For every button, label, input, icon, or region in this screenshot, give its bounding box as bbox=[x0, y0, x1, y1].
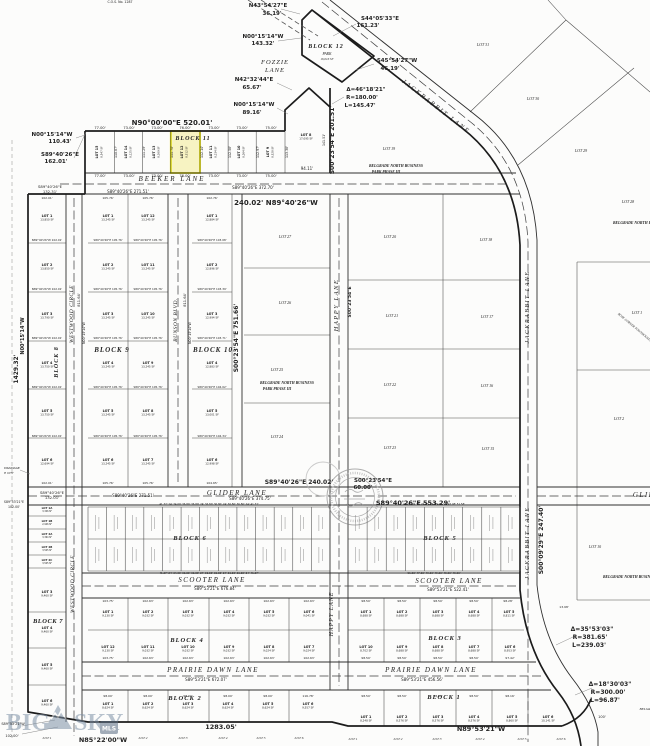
lot-label: LOT 58,860 SF bbox=[506, 715, 518, 723]
map-label: 98.50' bbox=[433, 599, 443, 603]
map-label: 104.65' bbox=[206, 481, 217, 485]
lot-label: LOT 98,688 SF bbox=[396, 645, 408, 653]
map-label: 51.58' 47.08' 49.33' 49.33' 49.33' 49.33… bbox=[408, 571, 461, 575]
map-label: 98.50' bbox=[469, 599, 479, 603]
map-label: 100' bbox=[598, 715, 606, 719]
lot-label: LOT 112,884 SF bbox=[205, 214, 219, 222]
map-label: LOT 25 bbox=[270, 367, 283, 372]
map-label: PARK bbox=[321, 52, 331, 56]
map-label: 143.32' bbox=[252, 41, 275, 47]
map-label: LOT 2 bbox=[138, 736, 148, 740]
map-label: N85°22'00"W bbox=[79, 736, 127, 744]
map-label: S89°40'26"E 104.34' bbox=[197, 434, 226, 438]
map-label: LOT 2 bbox=[613, 416, 624, 421]
lot-label: LOT 713,245 SF bbox=[141, 458, 155, 466]
map-label: N89°40'26"W 102.01' bbox=[32, 336, 63, 340]
map-label: PARK PHASE III bbox=[372, 170, 401, 174]
map-label: 75.00' bbox=[265, 174, 276, 178]
lot-label: LOT 69,557 SF bbox=[302, 702, 314, 710]
map-label: 98.50' bbox=[433, 694, 443, 698]
map-label: S89°53'21"W bbox=[1, 722, 25, 726]
lot-label: LOT 212,896 SF bbox=[205, 263, 219, 271]
lot-label: LOT 15 bbox=[95, 145, 99, 158]
map-label: 102.63' bbox=[263, 656, 274, 660]
lot-label: 8,512 SF bbox=[185, 146, 189, 158]
map-label: 132.31' bbox=[43, 189, 57, 194]
lot-label: LOT 28,624 SF bbox=[142, 702, 154, 710]
map-label: 98.00' bbox=[143, 694, 153, 698]
map-label: LOT 1 bbox=[348, 737, 358, 741]
lot-label: LOT 59,460 SF bbox=[41, 663, 53, 671]
map-label: S89°40'26"E 240.02' bbox=[265, 479, 334, 486]
lot-label: LOT 108,702 SF bbox=[359, 645, 373, 653]
map-label: 77.00' bbox=[94, 126, 105, 130]
map-label: BLOCK 6 bbox=[172, 535, 207, 542]
lot-label: LOT 99,032 SF bbox=[223, 645, 235, 653]
map-label: 102.63' bbox=[142, 599, 153, 603]
map-label: N90°00'00"E 520.01' bbox=[132, 119, 213, 127]
map-label: S00°09'29"E 247.40' bbox=[538, 506, 545, 575]
map-label: 13.98' bbox=[559, 605, 569, 609]
map-label: 102.00' bbox=[8, 505, 20, 509]
map-label: BLOCK 3 bbox=[427, 635, 462, 642]
lot-label: LOT 613,245 SF bbox=[101, 458, 115, 466]
lot-label: 8,169 SF bbox=[157, 146, 161, 158]
map-label: 240.02' N89°40'26"W bbox=[234, 199, 318, 207]
mls-badge-label: MLS bbox=[102, 726, 116, 733]
lot-label: LOT 18,688 SF bbox=[360, 610, 372, 618]
map-label: 102.63' bbox=[142, 656, 153, 660]
lot-label: LOT 213,850 SF bbox=[40, 263, 54, 271]
map-label: 98.50' bbox=[397, 694, 407, 698]
map-label: 98.50' bbox=[361, 656, 371, 660]
map-label: 98.50' bbox=[397, 599, 407, 603]
lot-label: LOT 68,953 SF bbox=[504, 645, 516, 653]
map-label: S89°40'26"E 105.76' bbox=[133, 336, 162, 340]
map-label: 161.23' bbox=[357, 23, 380, 29]
lot-label: LOT 39,460 SF bbox=[41, 590, 53, 598]
map-label: Δ=46°18'21" bbox=[346, 87, 385, 93]
map-label: BELGRADE NORTH BUSINESS bbox=[368, 164, 423, 168]
map-label: R=180.00' bbox=[346, 95, 378, 101]
lot-label: 8,264 SF bbox=[242, 146, 246, 158]
map-label: LOT 22 bbox=[383, 382, 396, 387]
map-label: LOT 26 bbox=[278, 300, 291, 305]
map-background bbox=[0, 0, 650, 746]
map-label: LANE bbox=[264, 67, 285, 74]
lot-label: LOT 1B2,946 SF bbox=[42, 519, 53, 526]
lot-label: LOT 513,245 SF bbox=[101, 409, 115, 417]
map-label: 102.63' bbox=[182, 656, 193, 660]
map-label: 98.00' bbox=[103, 694, 113, 698]
map-label: C.O.S. No. 1287 bbox=[107, 0, 132, 4]
map-label: 112.97' bbox=[256, 146, 260, 158]
map-label: DRAINAGE bbox=[4, 466, 20, 470]
map-label: 105.76' bbox=[102, 481, 113, 485]
lot-label: LOT 119,032 SF bbox=[141, 645, 155, 653]
lot-label: LOT 1213,245 SF bbox=[141, 214, 155, 222]
map-label: LOT 10 bbox=[588, 544, 601, 549]
plat-map: BIG SKY MLS BEEKER LANEGLIDER LANEGLIDER… bbox=[0, 0, 650, 746]
map-label: 116.78' bbox=[302, 694, 313, 698]
map-label: N89°53'21"W bbox=[457, 725, 505, 733]
map-label: 141.51' bbox=[322, 134, 326, 146]
map-label: S00°23'54"E 751.66' bbox=[233, 304, 240, 373]
lot-label: LOT 9 bbox=[266, 146, 270, 157]
map-label: LOT 4 bbox=[475, 737, 485, 741]
map-label: 811.64' bbox=[77, 293, 81, 307]
map-label: BELGRADE N bbox=[640, 707, 650, 711]
map-label: S89°40'26"E bbox=[41, 152, 79, 158]
map-label: 97.42' bbox=[505, 656, 515, 660]
map-label: 1429.32' bbox=[13, 354, 20, 383]
map-label: LOT 15 bbox=[481, 446, 494, 451]
lot-label: LOT 11 bbox=[209, 145, 213, 158]
map-label: BLOCK 7 bbox=[32, 618, 63, 625]
map-label: 102.63' bbox=[263, 599, 274, 603]
map-label: LOT 6 bbox=[556, 737, 566, 741]
map-label: 73.00' bbox=[208, 174, 219, 178]
map-label: 98.50' bbox=[361, 694, 371, 698]
map-label: 98.00' bbox=[263, 694, 273, 698]
map-label: 73.00' bbox=[236, 126, 247, 130]
lot-label: LOT 113,245 SF bbox=[101, 214, 115, 222]
lot-label: LOT 29,032 SF bbox=[142, 610, 154, 618]
map-label: 46.19' bbox=[380, 66, 399, 72]
map-label: N89°40'26"W 102.01' bbox=[32, 287, 63, 291]
lot-label: LOT 2A3,364 SF bbox=[42, 532, 54, 539]
lot-label: LOT 513,001 SF bbox=[205, 409, 219, 417]
map-label: BLOCK 12 bbox=[307, 44, 344, 50]
map-label: PRAIRIE DAWN LANE bbox=[384, 666, 477, 674]
map-label: L=96.87' bbox=[590, 697, 620, 704]
map-label: N42°32'44"E bbox=[235, 77, 274, 83]
lot-label: LOT 38,624 SF bbox=[182, 702, 194, 710]
map-label: S89°40'26"E 105.76' bbox=[133, 385, 162, 389]
map-label: 73.00' bbox=[236, 174, 247, 178]
map-label: S89°40'26"E 103.71' bbox=[197, 336, 226, 340]
map-label: S89°40'26"E 271.51' bbox=[107, 189, 149, 194]
map-label: BLOCK 9 bbox=[93, 346, 130, 354]
map-label: BUNSON BLVD. bbox=[173, 298, 179, 342]
map-label: S89°40'26"E 105.76' bbox=[93, 238, 122, 242]
map-label: LOT 27 bbox=[278, 234, 292, 239]
map-label: S89°53'21"E 522.41' bbox=[427, 587, 469, 592]
map-label: S44°05'33"E bbox=[361, 16, 399, 22]
lot-label: LOT 58,624 SF bbox=[262, 702, 274, 710]
map-label: S89°40'26"E 105.76' bbox=[133, 434, 162, 438]
map-label: 73.00' bbox=[208, 126, 219, 130]
map-label: BLOCK 11 bbox=[174, 136, 210, 142]
map-label: S45°54'27"W bbox=[377, 58, 417, 64]
map-label: S89°40'26"E 105.76' bbox=[133, 238, 162, 242]
map-label: LOT 18 bbox=[479, 237, 492, 242]
map-label: N89°40'26"W 102.01' bbox=[32, 434, 63, 438]
map-label: BELGRADE NORTH BUSINESS bbox=[259, 381, 314, 385]
map-label: 113.38' bbox=[285, 146, 289, 158]
lot-label: LOT 18,624 SF bbox=[102, 702, 114, 710]
lot-label: LOT 113,850 SF bbox=[40, 214, 54, 222]
lot-label: LOT 59,032 SF bbox=[263, 610, 275, 618]
map-label: JACKRABBIT LANE bbox=[525, 271, 531, 344]
map-label: R=381.65' bbox=[573, 634, 608, 641]
map-label: LOT 6 bbox=[294, 736, 304, 740]
map-label: E CITY bbox=[4, 471, 14, 475]
lot-label: LOT 513,750 SF bbox=[40, 409, 54, 417]
map-label: 105.76' bbox=[142, 196, 153, 200]
map-label: 36.19' bbox=[262, 11, 281, 17]
map-label: S00°23'54"E 201.51' bbox=[329, 106, 336, 175]
map-label: LOT 4 bbox=[218, 736, 228, 740]
map-label: LOT 5 bbox=[517, 737, 527, 741]
map-label: 112.58' bbox=[228, 146, 232, 158]
map-label: 77.00' bbox=[94, 174, 105, 178]
lot-label: LOT 313,790 SF bbox=[40, 312, 54, 320]
map-label: PRAIRIE DAWN LANE bbox=[166, 666, 259, 674]
lot-label: LOT 1A3,346 SF bbox=[42, 506, 54, 513]
map-label: N00°15'14"W bbox=[243, 34, 284, 40]
map-label: 162.01' bbox=[45, 159, 68, 165]
lot-label: 8,528 SF bbox=[271, 146, 275, 158]
lot-label: LOT 58,811 SF bbox=[503, 610, 515, 618]
map-label: 102.63' bbox=[223, 656, 234, 660]
map-label: 98.50' bbox=[469, 694, 479, 698]
map-label: LOT 1 bbox=[631, 310, 642, 315]
map-label: 41.37' 24' 34.00' 36.80' 36.80' 24' 36.8… bbox=[159, 502, 258, 506]
lot-label: 8,547 SF bbox=[100, 146, 104, 158]
map-label: 98.50' bbox=[361, 599, 371, 603]
map-label: 73.00' bbox=[151, 174, 162, 178]
map-label: LOT 3 bbox=[178, 736, 188, 740]
map-label: BELGRADE NORTH BUSINESS bbox=[612, 221, 650, 225]
map-label: 1283.05' bbox=[205, 723, 237, 731]
map-label: 102.63' bbox=[303, 656, 314, 660]
lot-label: LOT 1113,245 SF bbox=[141, 263, 155, 271]
map-label: S89°40'26"E 271.51' bbox=[112, 493, 154, 498]
lot-label: LOT 413,750 SF bbox=[40, 361, 54, 369]
lot-label: LOT 28,576 SF bbox=[396, 715, 408, 723]
lot-label: 8,125 SF bbox=[129, 146, 133, 158]
map-label: 49.33' 49.33' 49.33' 49.33' 49.33' 47.08… bbox=[403, 502, 465, 506]
map-label: 102.76' bbox=[206, 196, 217, 200]
map-label: HAPPY LANE bbox=[329, 592, 335, 638]
map-label: LOT 20 bbox=[383, 234, 396, 239]
lot-label: LOT 28,688 SF bbox=[396, 610, 408, 618]
map-label: 73.00' bbox=[123, 174, 134, 178]
lot-label: LOT 813,245 SF bbox=[141, 409, 155, 417]
map-label: LOT 30 bbox=[526, 96, 539, 101]
map-label: 76.00' bbox=[179, 126, 190, 130]
map-label: S89°40'26"E 105.76' bbox=[93, 336, 122, 340]
map-label: 103.75' bbox=[102, 599, 113, 603]
map-label: BELGRADE NORTH BUSINESS bbox=[602, 575, 650, 579]
lot-label: LOT 38,576 SF bbox=[432, 715, 444, 723]
map-label: 102.01' bbox=[41, 481, 52, 485]
map-label: 102.01' bbox=[41, 196, 52, 200]
map-label: SCOOTER LANE bbox=[415, 577, 483, 585]
map-label: BLOCK 4 bbox=[169, 637, 204, 644]
map-label: BLOCK 8 bbox=[54, 346, 60, 379]
map-label: LOT 16 bbox=[480, 383, 493, 388]
lot-label: LOT 88,688 SF bbox=[432, 645, 444, 653]
map-label: N00°15'14"W bbox=[234, 102, 275, 108]
map-label: 105.76' bbox=[102, 196, 113, 200]
map-label: 98.28' bbox=[503, 599, 513, 603]
map-label: LOT 29 bbox=[574, 148, 587, 153]
map-label: S89°53'21"E 676.84' bbox=[194, 586, 236, 591]
map-label: 111.29' bbox=[142, 146, 146, 158]
map-label: 102.00' bbox=[5, 734, 18, 738]
map-label: 75.00' bbox=[265, 126, 276, 130]
map-label: GLIDER LANE bbox=[633, 491, 650, 499]
lot-label: LOT 89,024 SF bbox=[263, 645, 275, 653]
map-label: N00°15'14"W bbox=[32, 132, 73, 138]
lot-label: LOT 38,688 SF bbox=[432, 610, 444, 618]
map-label: LOT 3 bbox=[432, 737, 442, 741]
lot-label: LOT 49,460 SF bbox=[41, 626, 53, 634]
lot-label: LOT 48,688 SF bbox=[468, 610, 480, 618]
map-label: BLOCK 1 bbox=[426, 694, 461, 701]
map-label: S89°40'26"E 372.70' bbox=[232, 185, 274, 190]
map-label: S89°40'26"E 104.02' bbox=[197, 385, 226, 389]
map-label: S89°53'21"E 456.56' bbox=[401, 677, 443, 682]
mls-badge: MLS bbox=[100, 721, 118, 734]
map-label: LOT 17 bbox=[480, 314, 494, 319]
map-label: N43°54'27"E bbox=[249, 3, 288, 9]
map-label: S89°40'26"E 103.39' bbox=[197, 287, 226, 291]
map-label: S89°53'21"E bbox=[4, 500, 24, 504]
map-label: WESTWOOD CIRCLE bbox=[69, 285, 75, 343]
lot-label: LOT 39,032 SF bbox=[182, 610, 194, 618]
map-label: N00°15'14"W bbox=[82, 321, 86, 343]
lot-label: LOT 14 bbox=[124, 145, 128, 158]
map-label: S89°40'26"E 105.76' bbox=[93, 434, 122, 438]
map-label: 111.70' bbox=[170, 146, 174, 158]
map-label: 98.00' bbox=[183, 694, 193, 698]
lot-label: LOT 213,245 SF bbox=[101, 263, 115, 271]
lot-label: LOT 2C3,505 SF bbox=[42, 558, 53, 565]
map-label: 110.87' bbox=[114, 146, 118, 158]
map-label: LOT 1 bbox=[42, 736, 52, 740]
map-label: LOT 5 bbox=[256, 736, 266, 740]
lot-label: LOT 313,245 SF bbox=[101, 312, 115, 320]
lot-label: LOT 48,576 SF bbox=[468, 715, 480, 723]
map-label: 41.37' 24' 34.00' 36.80' 36.80' 24' 36.8… bbox=[159, 571, 258, 575]
map-label: S00°23'54"E bbox=[354, 478, 392, 484]
map-label: JACKRABBIT LANE bbox=[525, 507, 531, 580]
map-label: 94.11' bbox=[301, 166, 314, 171]
map-label: 811.64' bbox=[183, 293, 187, 307]
lot-label: LOT 413,245 SF bbox=[101, 361, 115, 369]
lot-label: LOT 13 bbox=[152, 145, 156, 158]
lot-label: LOT 49,032 SF bbox=[223, 610, 235, 618]
lot-label: LOT 817,095 SF bbox=[299, 133, 313, 141]
map-label: LOT 24 bbox=[270, 434, 283, 439]
lot-label: 8,234 SF bbox=[214, 146, 218, 158]
map-label: S89°40'26"E 105.76' bbox=[93, 385, 122, 389]
map-label: LOT 2 bbox=[393, 737, 403, 741]
lot-label: LOT 109,032 SF bbox=[181, 645, 195, 653]
map-label: 76.00' bbox=[179, 174, 190, 178]
map-label: LOT 23 bbox=[383, 445, 396, 450]
map-label: Δ=35°53'03" bbox=[571, 626, 614, 633]
map-label: S89°53'21"E 672.07' bbox=[185, 677, 227, 682]
map-label: 98.16' bbox=[505, 694, 515, 698]
map-label: L=145.47' bbox=[344, 103, 375, 109]
map-label: 105.76' bbox=[142, 481, 153, 485]
map-label: LOT 31 bbox=[476, 42, 489, 47]
map-label: S89°40'26"E 374.75' bbox=[229, 496, 271, 501]
lot-label: LOT 69,041 SF bbox=[303, 610, 315, 618]
map-label: R=300.00' bbox=[591, 689, 626, 696]
map-label: SCOOTER LANE bbox=[178, 576, 246, 584]
lot-label: LOT 1013,245 SF bbox=[141, 312, 155, 320]
lot-label: LOT 412,883 SF bbox=[205, 361, 219, 369]
map-label: 102.63' bbox=[182, 599, 193, 603]
lot-label: LOT 913,245 SF bbox=[141, 361, 155, 369]
map-label: S89°40'26"E 105.76' bbox=[133, 287, 162, 291]
map-label: BEEKER LANE bbox=[139, 175, 206, 183]
map-label: 102.63' bbox=[303, 599, 314, 603]
map-label: 60.00' bbox=[353, 485, 372, 491]
map-label: PARK PHASE III bbox=[263, 387, 292, 391]
lot-label: LOT 79,024 SF bbox=[303, 645, 315, 653]
map-label: 112.14' bbox=[200, 146, 204, 158]
map-label: N89°40'26"W 102.01' bbox=[32, 238, 63, 242]
lot-label: LOT 10 bbox=[237, 145, 241, 158]
lot-label: LOT 612,694 SF bbox=[40, 458, 54, 466]
lot-label: LOT 69,460 SF bbox=[41, 699, 53, 707]
lot-label: LOT 2B3,505 SF bbox=[42, 545, 53, 552]
map-label: N00°15'14"W bbox=[20, 317, 26, 355]
map-label: FOZZIE bbox=[260, 59, 289, 66]
map-label: 98.50' bbox=[469, 656, 479, 660]
lot-label: LOT 129,130 SF bbox=[101, 645, 115, 653]
map-label: 73.00' bbox=[151, 126, 162, 130]
map-label: Δ=18°30'03" bbox=[589, 681, 632, 688]
map-label: LOT 28 bbox=[621, 199, 634, 204]
map-label: 98.00' bbox=[223, 694, 233, 698]
map-label: 65.67' bbox=[242, 85, 261, 91]
document-page: BIG SKY MLS BEEKER LANEGLIDER LANEGLIDER… bbox=[0, 0, 650, 746]
map-label: S00°23'54"E bbox=[347, 286, 353, 317]
map-label: HAPPY LANE bbox=[333, 279, 340, 333]
map-label: N89°40'26"W 102.01' bbox=[32, 385, 63, 389]
map-label: WESTWOOD CIRCLE bbox=[70, 555, 76, 613]
lot-label: LOT 12 bbox=[180, 146, 184, 159]
map-label: 103.75' bbox=[102, 656, 113, 660]
lot-label: LOT 48,624 SF bbox=[222, 702, 234, 710]
lot-label: LOT 19,130 SF bbox=[102, 610, 114, 618]
map-label: 89.16' bbox=[242, 110, 261, 116]
map-label: N00°15'14"W bbox=[188, 321, 192, 343]
map-label: 102.63' bbox=[223, 599, 234, 603]
map-label: 98.50' bbox=[397, 656, 407, 660]
lot-label: LOT 18,248 SF bbox=[360, 715, 372, 723]
map-label: S89°40'26"E 103.08' bbox=[197, 238, 226, 242]
map-label: LOT 21 bbox=[385, 313, 398, 318]
map-label: 132.01' bbox=[45, 495, 59, 500]
map-label: LOT 19 bbox=[382, 146, 395, 151]
lot-label: LOT 78,688 SF bbox=[468, 645, 480, 653]
map-label: S89°40'26"E 105.76' bbox=[93, 287, 122, 291]
lot-label: LOT 612,998 SF bbox=[205, 458, 219, 466]
map-label: 110.43' bbox=[49, 139, 72, 145]
map-label: L=239.03' bbox=[572, 642, 606, 649]
map-label: 98.50' bbox=[433, 656, 443, 660]
map-label: BLOCK 5 bbox=[422, 535, 457, 542]
map-label: 73.00' bbox=[123, 126, 134, 130]
